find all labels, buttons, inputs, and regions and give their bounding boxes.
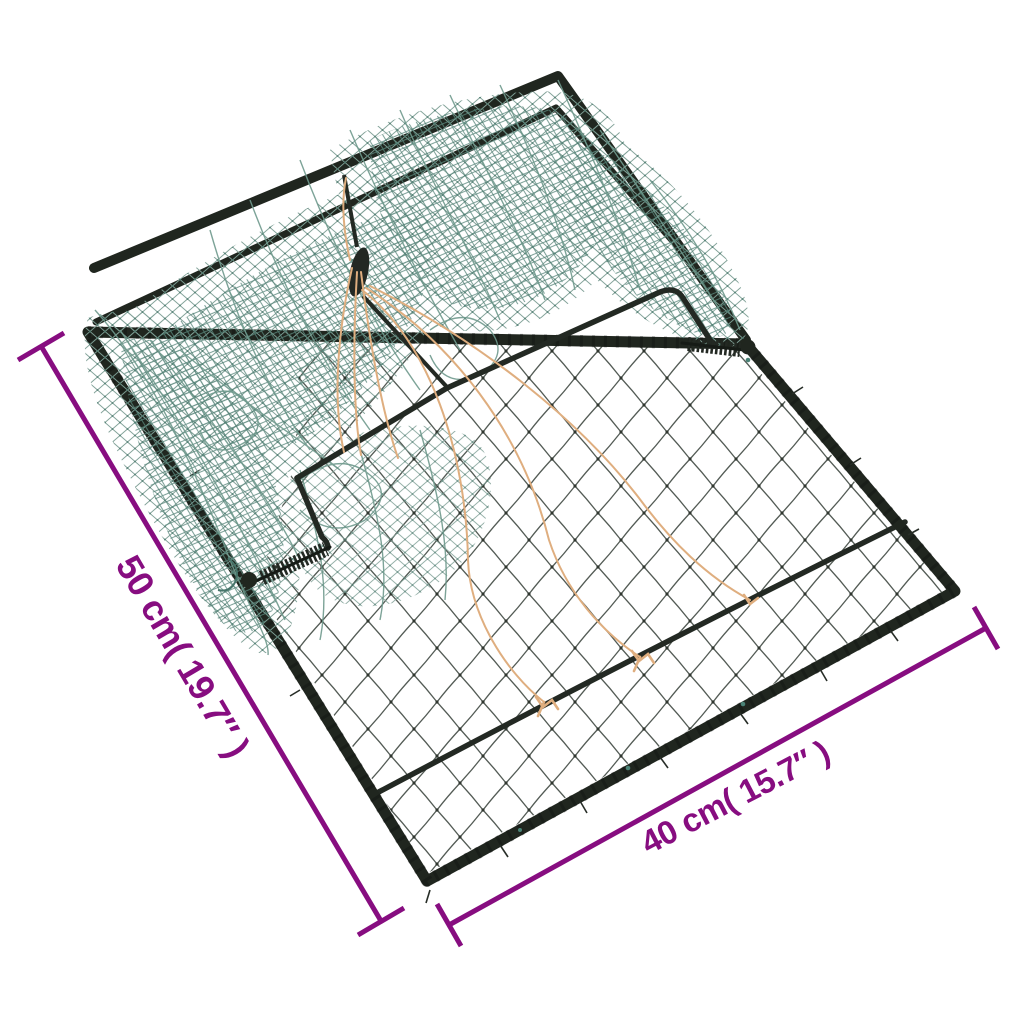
product-image: 50 cm( 19.7″ ) 40 cm( 15.7″ )	[0, 0, 1024, 1024]
left-spring-anchor	[241, 572, 257, 588]
bird-trap-illustration: 50 cm( 19.7″ ) 40 cm( 15.7″ )	[0, 0, 1024, 1024]
hinge-knob	[741, 340, 756, 355]
